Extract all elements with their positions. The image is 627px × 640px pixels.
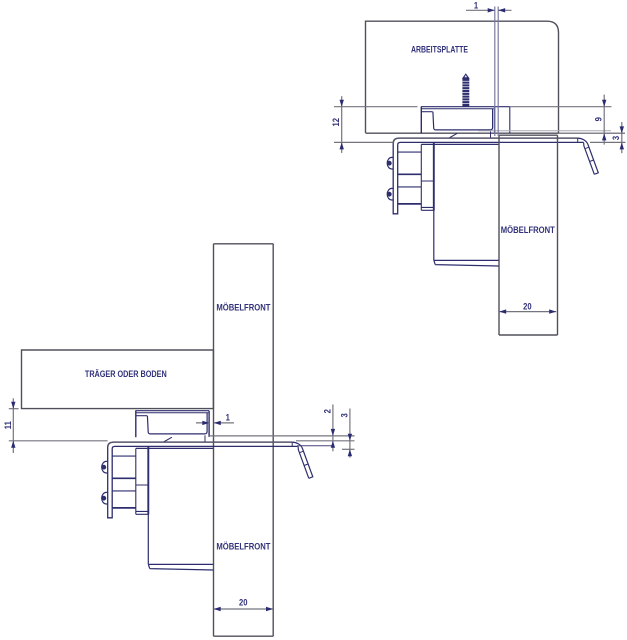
svg-text:20: 20 — [523, 301, 532, 312]
svg-text:TRÄGER ODER BODEN: TRÄGER ODER BODEN — [85, 368, 167, 379]
svg-text:9: 9 — [593, 117, 604, 122]
svg-text:12: 12 — [331, 118, 342, 127]
svg-text:2: 2 — [322, 409, 333, 414]
svg-text:1: 1 — [226, 412, 231, 423]
svg-text:MÖBELFRONT: MÖBELFRONT — [216, 540, 271, 551]
svg-text:MÖBELFRONT: MÖBELFRONT — [216, 302, 271, 313]
svg-text:3: 3 — [610, 136, 621, 141]
svg-text:MÖBELFRONT: MÖBELFRONT — [501, 224, 556, 235]
svg-text:1: 1 — [474, 0, 479, 11]
svg-text:20: 20 — [239, 597, 248, 608]
svg-text:3: 3 — [339, 413, 350, 418]
svg-text:11: 11 — [2, 421, 13, 429]
svg-text:ARBEITSPLATTE: ARBEITSPLATTE — [411, 43, 468, 54]
